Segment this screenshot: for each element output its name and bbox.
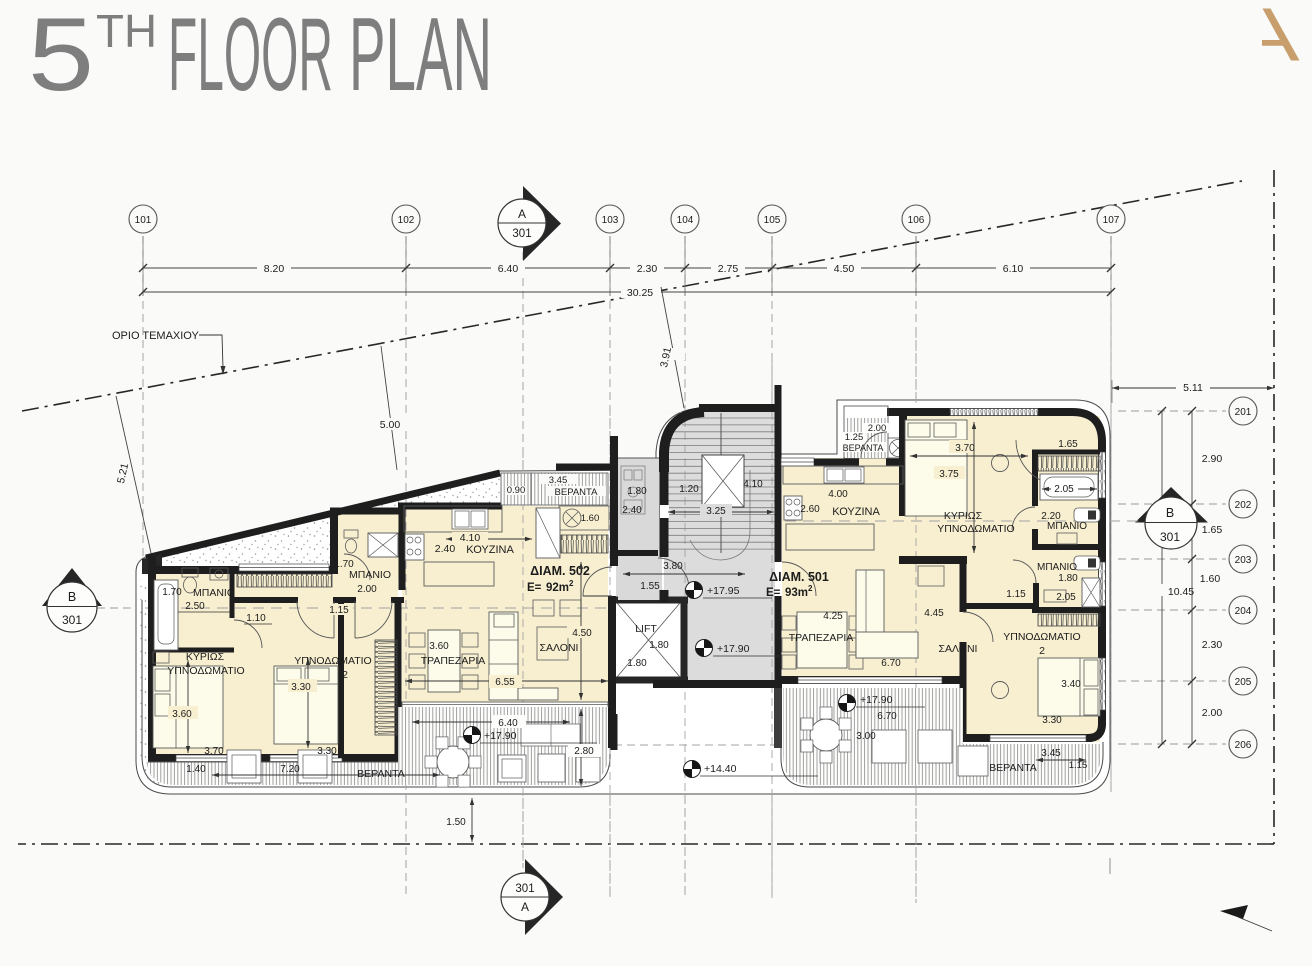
svg-text:0.90: 0.90 [507, 485, 526, 496]
svg-text:A: A [518, 207, 526, 221]
svg-text:3.30: 3.30 [317, 746, 337, 757]
svg-text:2.00: 2.00 [357, 584, 377, 595]
svg-text:3.75: 3.75 [939, 469, 959, 480]
svg-text:ΥΠΝΟΔΩΜΑΤΙΟ: ΥΠΝΟΔΩΜΑΤΙΟ [1003, 631, 1080, 643]
svg-text:2.40: 2.40 [622, 505, 642, 516]
svg-text:103: 103 [602, 215, 619, 226]
svg-text:2: 2 [342, 669, 348, 681]
svg-text:2.90: 2.90 [1202, 453, 1223, 465]
svg-text:1.70: 1.70 [162, 587, 182, 598]
svg-text:1.50: 1.50 [446, 817, 466, 828]
svg-text:ΜΠΑΝΙΟ: ΜΠΑΝΙΟ [349, 569, 391, 581]
svg-text:2: 2 [808, 584, 813, 593]
svg-text:+17.90: +17.90 [860, 694, 893, 706]
svg-text:1.55: 1.55 [640, 581, 660, 592]
svg-text:4.10: 4.10 [743, 479, 763, 490]
svg-text:ΚΟΥΖΙΝΑ: ΚΟΥΖΙΝΑ [832, 506, 880, 518]
svg-text:3.25: 3.25 [706, 506, 726, 517]
svg-text:ΒΕΡΑΝΤΑ: ΒΕΡΑΝΤΑ [989, 762, 1036, 774]
svg-text:PLAN: PLAN [349, 0, 492, 113]
svg-text:LIFT: LIFT [635, 623, 657, 635]
svg-text:ΥΠΝΟΔΩΜΑΤΙΟ: ΥΠΝΟΔΩΜΑΤΙΟ [167, 665, 244, 677]
svg-text:1.60: 1.60 [581, 513, 600, 524]
svg-text:30.25: 30.25 [627, 287, 653, 299]
svg-text:301: 301 [515, 883, 534, 895]
svg-text:ΟΡΙΟ ΤΕΜΑΧΙΟΥ: ΟΡΙΟ ΤΕΜΑΧΙΟΥ [112, 330, 200, 342]
svg-text:7.20: 7.20 [280, 764, 300, 775]
svg-text:1.15: 1.15 [1006, 589, 1026, 600]
svg-text:1.25: 1.25 [845, 432, 864, 443]
svg-text:3.00: 3.00 [856, 731, 876, 742]
svg-text:4.50: 4.50 [572, 628, 592, 639]
svg-text:2.50: 2.50 [185, 601, 205, 612]
svg-text:2.60: 2.60 [800, 504, 820, 515]
svg-text:2: 2 [569, 579, 574, 588]
svg-text:3.60: 3.60 [172, 709, 192, 720]
svg-text:3.45: 3.45 [1041, 748, 1061, 759]
svg-text:+17.95: +17.95 [707, 585, 740, 597]
svg-text:ΥΠΝΟΔΩΜΑΤΙΟ: ΥΠΝΟΔΩΜΑΤΙΟ [937, 523, 1014, 535]
svg-text:1.65: 1.65 [1202, 524, 1223, 536]
svg-text:TH: TH [96, 5, 157, 57]
svg-text:B: B [1166, 506, 1174, 520]
svg-text:1.40: 1.40 [186, 764, 206, 775]
svg-text:ΚΟΥΖΙΝΑ: ΚΟΥΖΙΝΑ [466, 544, 514, 556]
svg-text:2.80: 2.80 [574, 746, 594, 757]
svg-text:ΣΑΛΟΝΙ: ΣΑΛΟΝΙ [540, 642, 579, 654]
svg-text:1.15: 1.15 [329, 605, 349, 616]
svg-text:+17.90: +17.90 [717, 643, 750, 655]
svg-text:4.25: 4.25 [823, 611, 843, 622]
svg-text:106: 106 [908, 215, 925, 226]
svg-text:ΒΕΡΑΝΤΑ: ΒΕΡΑΝΤΑ [555, 487, 599, 498]
svg-text:3.40: 3.40 [1061, 679, 1081, 690]
svg-text:1.65: 1.65 [1058, 439, 1078, 450]
svg-text:3.80: 3.80 [663, 561, 683, 572]
svg-text:4.10: 4.10 [460, 532, 481, 544]
svg-text:ΜΠΑΝΙΟ: ΜΠΑΝΙΟ [193, 587, 235, 599]
svg-text:2.30: 2.30 [637, 263, 658, 275]
svg-text:6.10: 6.10 [1003, 263, 1024, 275]
svg-text:301: 301 [512, 228, 531, 240]
svg-text:+14.40: +14.40 [704, 763, 737, 775]
svg-text:ΔΙΑΜ. 501: ΔΙΑΜ. 501 [769, 570, 829, 584]
svg-text:2.05: 2.05 [1054, 484, 1074, 495]
svg-text:ΚΥΡΙΩΣ: ΚΥΡΙΩΣ [186, 651, 225, 663]
svg-text:ΜΠΑΝΙΟ: ΜΠΑΝΙΟ [1037, 562, 1077, 573]
svg-text:2.05: 2.05 [1056, 592, 1076, 603]
svg-text:5.00: 5.00 [380, 419, 401, 431]
svg-text:2.40: 2.40 [435, 543, 456, 555]
svg-text:5: 5 [28, 0, 94, 113]
svg-text:1.80: 1.80 [649, 640, 669, 651]
svg-text:6.40: 6.40 [498, 718, 518, 729]
svg-text:1.80: 1.80 [627, 486, 647, 497]
svg-text:1.20: 1.20 [679, 484, 699, 495]
svg-text:4.00: 4.00 [828, 489, 848, 500]
svg-text:202: 202 [1235, 500, 1252, 511]
svg-text:10.45: 10.45 [1168, 586, 1194, 598]
svg-text:6.70: 6.70 [881, 658, 901, 669]
svg-text:203: 203 [1235, 555, 1252, 566]
svg-text:ΜΠΑΝΙΟ: ΜΠΑΝΙΟ [1047, 521, 1087, 532]
svg-text:E=: E= [766, 587, 781, 599]
svg-text:1.15: 1.15 [1069, 760, 1088, 771]
svg-text:3.30: 3.30 [291, 682, 311, 693]
svg-text:205: 205 [1235, 677, 1252, 688]
svg-text:1.80: 1.80 [627, 658, 647, 669]
svg-text:ΚΥΡΙΩΣ: ΚΥΡΙΩΣ [944, 510, 983, 522]
svg-text:5.11: 5.11 [1183, 382, 1203, 394]
svg-text:301: 301 [1160, 530, 1180, 544]
svg-text:1.10: 1.10 [246, 613, 266, 624]
svg-text:206: 206 [1235, 740, 1252, 751]
svg-text:3.70: 3.70 [204, 746, 224, 757]
svg-text:301: 301 [62, 613, 82, 627]
svg-text:6.40: 6.40 [498, 263, 519, 275]
svg-text:3.60: 3.60 [429, 641, 449, 652]
svg-text:4.45: 4.45 [924, 608, 944, 619]
svg-text:3.70: 3.70 [955, 443, 975, 454]
svg-text:1.60: 1.60 [1200, 573, 1221, 585]
svg-text:1.80: 1.80 [1058, 573, 1078, 584]
svg-text:+17.90: +17.90 [484, 730, 517, 742]
svg-text:ΤΡΑΠΕΖΑΡΙΑ: ΤΡΑΠΕΖΑΡΙΑ [421, 655, 486, 667]
svg-text:107: 107 [1103, 215, 1120, 226]
svg-text:ΥΠΝΟΔΩΜΑΤΙΟ: ΥΠΝΟΔΩΜΑΤΙΟ [294, 655, 371, 667]
svg-text:201: 201 [1235, 407, 1252, 418]
svg-text:2: 2 [1039, 645, 1045, 657]
svg-text:4.50: 4.50 [834, 263, 855, 275]
svg-text:92m: 92m [546, 582, 569, 594]
svg-text:2.75: 2.75 [718, 263, 739, 275]
svg-text:102: 102 [398, 215, 415, 226]
svg-text:6.70: 6.70 [877, 711, 897, 722]
svg-text:ΒΕΡΑΝΤΑ: ΒΕΡΑΝΤΑ [357, 768, 404, 780]
svg-text:8.20: 8.20 [264, 263, 285, 275]
svg-text:ΤΡΑΠΕΖΑΡΙΑ: ΤΡΑΠΕΖΑΡΙΑ [789, 632, 854, 644]
svg-text:105: 105 [764, 215, 781, 226]
svg-text:ΣΑΛΟΝΙ: ΣΑΛΟΝΙ [939, 643, 978, 655]
svg-text:FLOOR: FLOOR [168, 0, 333, 113]
svg-text:101: 101 [135, 215, 152, 226]
svg-text:2.30: 2.30 [1202, 639, 1223, 651]
svg-text:3.30: 3.30 [1042, 715, 1062, 726]
svg-text:E=: E= [527, 582, 542, 594]
svg-text:204: 204 [1235, 606, 1252, 617]
svg-text:93m: 93m [785, 587, 808, 599]
svg-text:B: B [68, 590, 76, 604]
svg-text:6.55: 6.55 [495, 677, 515, 688]
svg-text:2.00: 2.00 [1202, 707, 1223, 719]
svg-text:3.45: 3.45 [549, 475, 568, 486]
svg-text:A: A [521, 900, 529, 914]
svg-text:104: 104 [677, 215, 694, 226]
